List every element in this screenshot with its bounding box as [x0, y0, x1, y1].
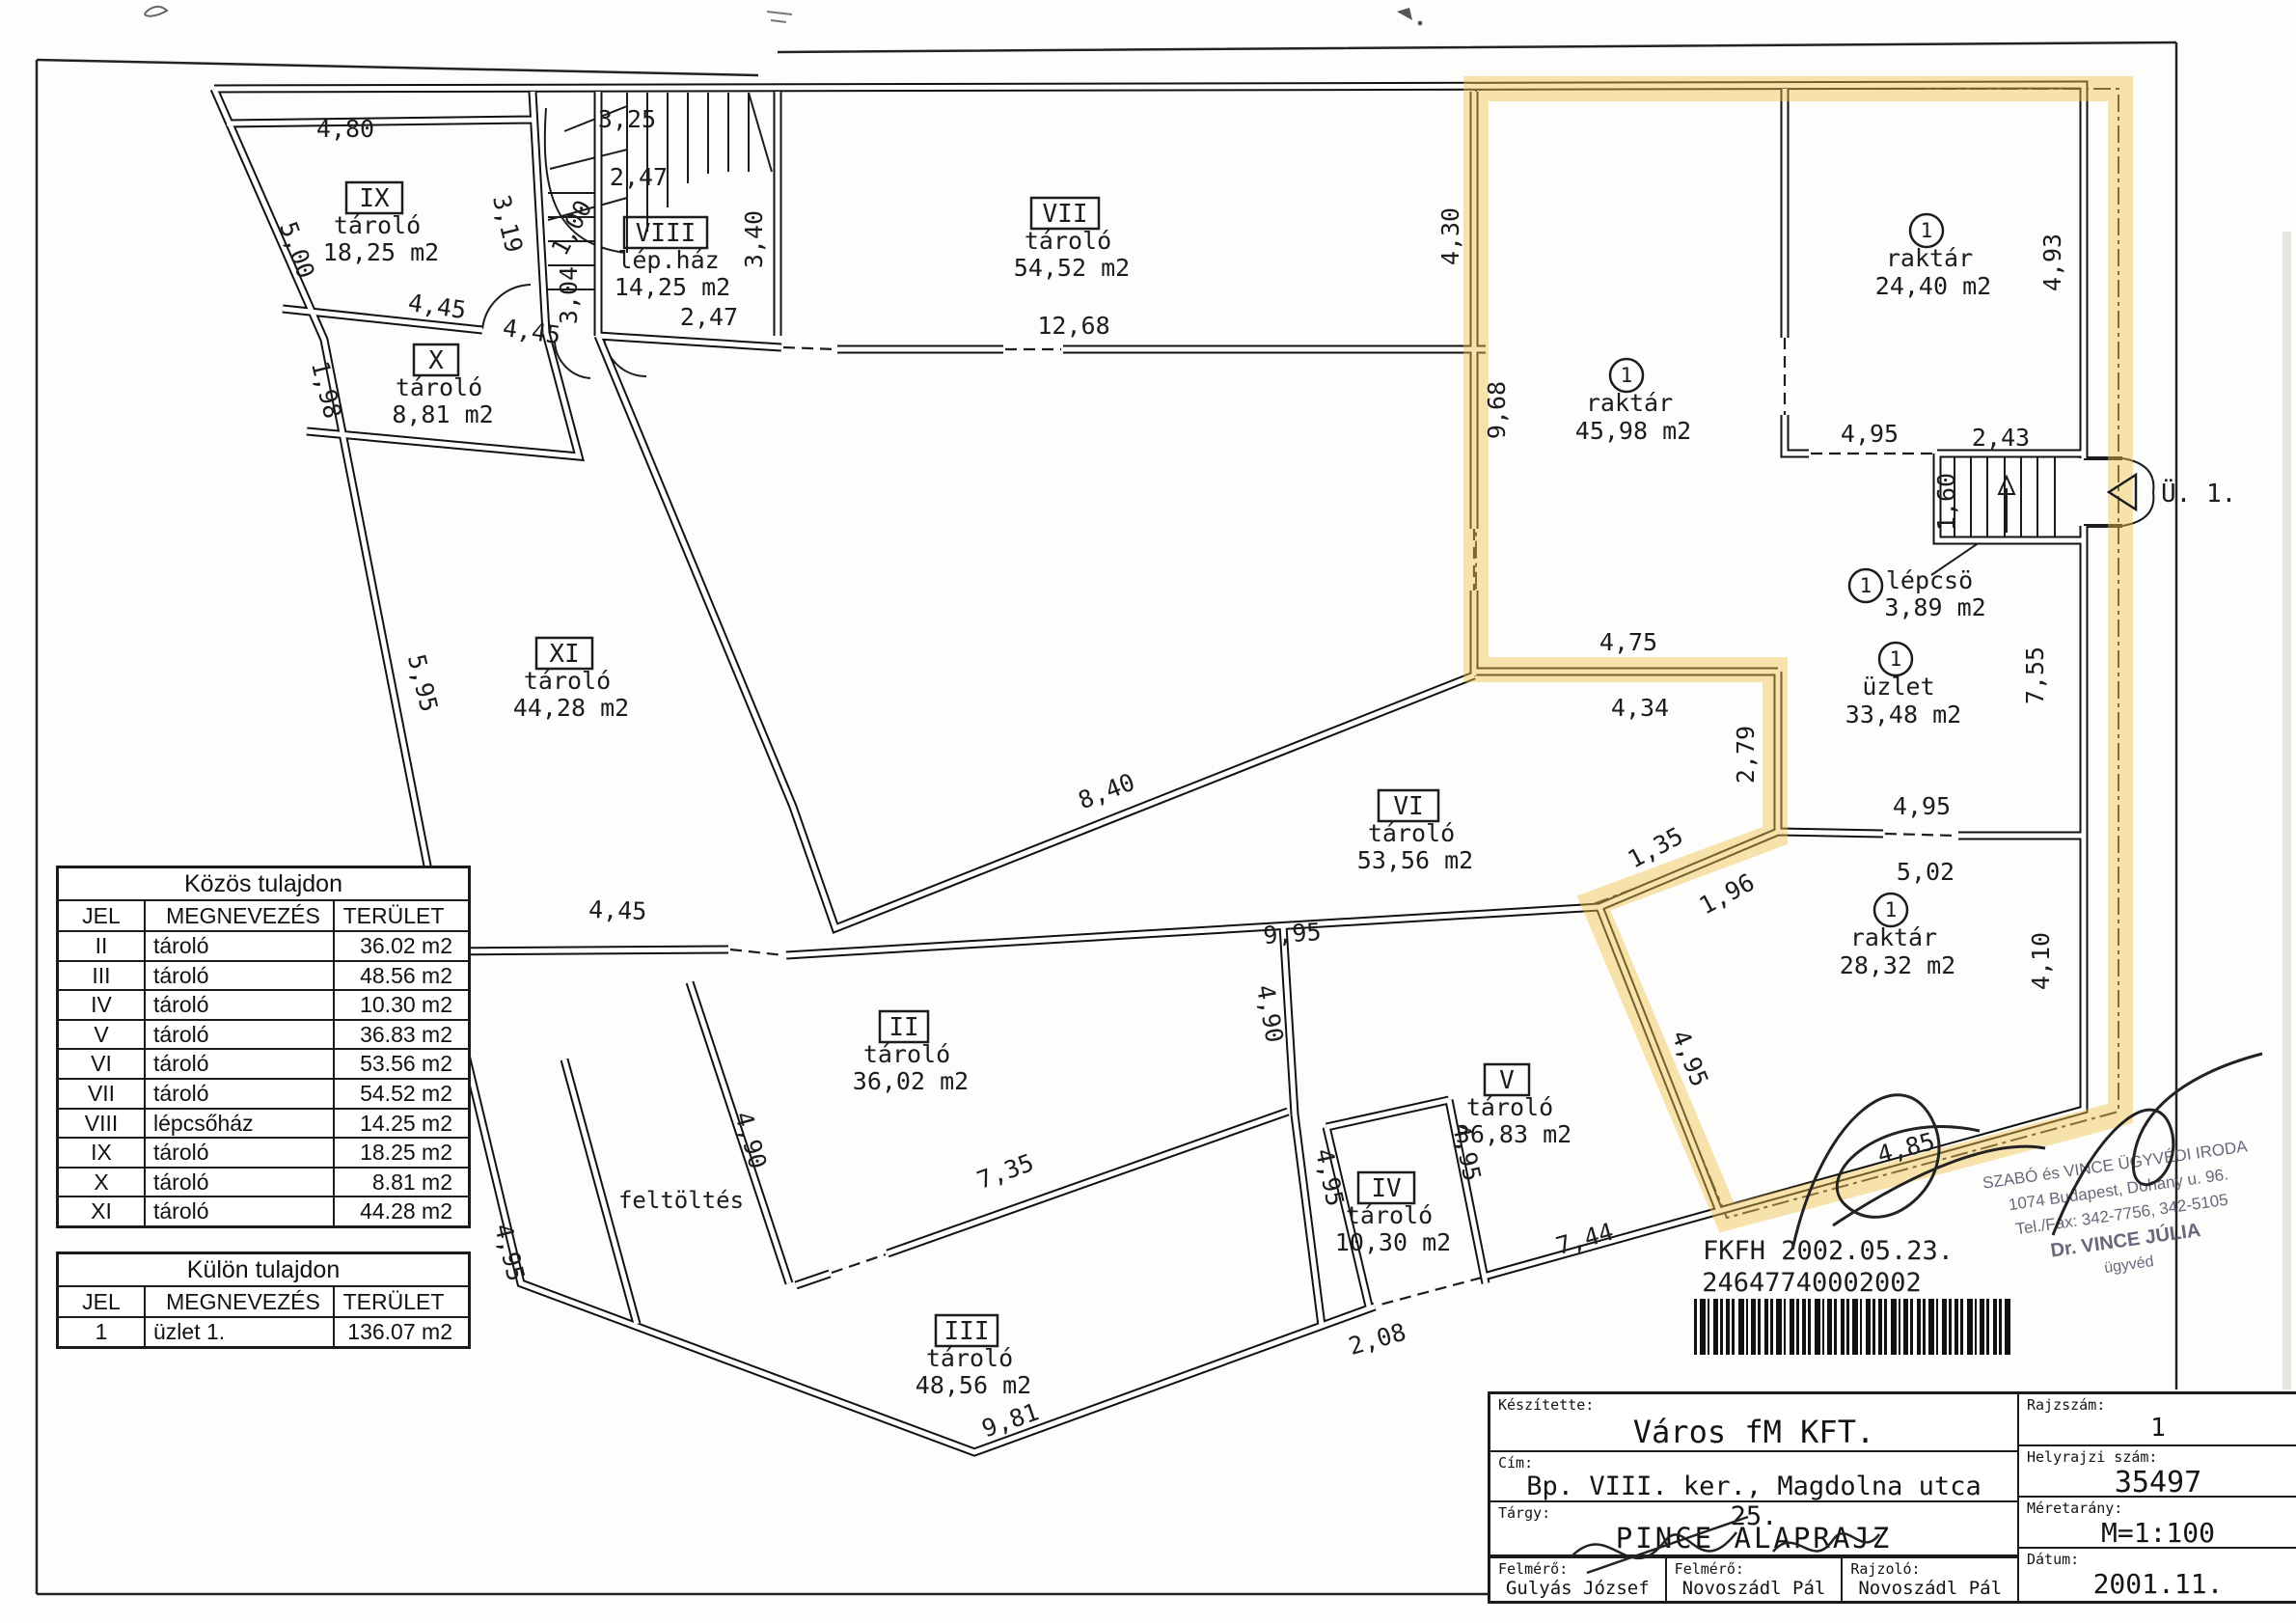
- room-label-IX: IXtároló18,25 m2: [323, 182, 439, 266]
- barcode-bar: [1846, 1299, 1849, 1355]
- dimension-label: 5,95: [402, 651, 444, 714]
- unit-number: 1: [1921, 219, 1933, 242]
- dimension-label: 9,68: [1483, 381, 1511, 439]
- barcode-bar: [1884, 1299, 1887, 1355]
- room-label-VIII: VIIIlép.ház14,25 m2: [615, 217, 730, 301]
- people-row: Felmérő: Gulyás József Felmérő: Novoszád…: [1490, 1556, 2017, 1601]
- drafter-cell: Rajzoló: Novoszádl Pál: [1843, 1558, 2017, 1601]
- surveyor1-label: Felmérő:: [1498, 1560, 1657, 1578]
- drawing-no-label: Rajzszám:: [2027, 1396, 2289, 1414]
- cell-terulet: 10.30 m2: [335, 991, 468, 1019]
- unit-number: 1: [1885, 898, 1898, 922]
- dimension-label: 7,35: [973, 1148, 1038, 1195]
- dimension-label: 4,95: [1893, 792, 1951, 820]
- dimension-label: 3,04: [555, 266, 583, 324]
- barcode-bar: [1720, 1299, 1723, 1355]
- barcode-bar: [1903, 1299, 1908, 1355]
- stamp-title: ügyvéd: [2103, 1253, 2154, 1277]
- unit-room-area: 28,32 m2: [1840, 951, 1955, 979]
- parcel-cell: Helyrajzi szám: 35497: [2019, 1446, 2296, 1498]
- room-name: tároló: [863, 1040, 950, 1068]
- cell-jel: IV: [59, 991, 146, 1019]
- barcode-bar: [1827, 1299, 1832, 1355]
- barcode-bar: [1928, 1299, 1934, 1355]
- barcode-bar: [1796, 1299, 1799, 1355]
- table-row: IVtároló10.30 m2: [59, 991, 468, 1021]
- cell-megnevezes: tároló: [146, 1021, 335, 1049]
- title-block: Készítette: Város fM KFT. Cím: Bp. VIII.…: [1488, 1391, 2296, 1604]
- scan-shadow: [2282, 232, 2291, 1389]
- barcode-bar: [1899, 1299, 1900, 1355]
- surveyor2-cell: Felmérő: Novoszádl Pál: [1667, 1558, 1844, 1601]
- room-id: XI: [549, 640, 579, 669]
- barcode-bar: [1802, 1299, 1806, 1355]
- surveyor1-value: Gulyás József: [1498, 1578, 1657, 1599]
- table-row: IIItároló48.56 m2: [59, 962, 468, 992]
- cell-jel: III: [59, 962, 146, 990]
- unit-room-name: raktár: [1886, 244, 1973, 272]
- room-area: 48,56 m2: [916, 1371, 1031, 1399]
- barcode-bar: [1790, 1299, 1794, 1355]
- barcode-stamp: FKFH 2002.05.23. 24647740002002: [1694, 1236, 2010, 1355]
- table-row: IXtároló18.25 m2: [59, 1139, 468, 1169]
- column-header: TERÜLET: [335, 901, 468, 930]
- room-area: 36,02 m2: [853, 1067, 969, 1095]
- subject-cell: Tárgy: PINCE ALAPRAJZ: [1490, 1502, 2017, 1556]
- barcode-bar: [2005, 1299, 2010, 1355]
- cell-megnevezes: tároló: [146, 991, 335, 1019]
- made-by-value: Város fM KFT.: [1498, 1414, 2009, 1450]
- barcode-bar: [1808, 1299, 1811, 1355]
- room-area: 54,52 m2: [1014, 254, 1130, 282]
- barcode-agency-date: FKFH 2002.05.23.: [1703, 1236, 1954, 1266]
- lawyer-stamp: SZABÓ és VINCE ÜGYVÉDI IRODA 1074 Budape…: [1982, 1137, 2263, 1291]
- unit-room-label-raktár: 1raktár24,40 m2: [1875, 214, 1991, 300]
- title-block-left: Készítette: Város fM KFT. Cím: Bp. VIII.…: [1490, 1394, 2019, 1601]
- common-property-table: Közös tulajdonJELMEGNEVEZÉSTERÜLETIItáro…: [56, 866, 471, 1228]
- barcode-bar: [1860, 1299, 1862, 1355]
- unit-room-name: raktár: [1586, 389, 1673, 417]
- barcode-bar: [1980, 1299, 1984, 1355]
- dimension-label: 2,43: [1972, 424, 2030, 452]
- room-name: lép.ház: [617, 246, 719, 274]
- room-label-XI: XItároló44,28 m2: [513, 638, 629, 722]
- dimension-label: 4,30: [1436, 207, 1464, 265]
- unit-room-label-üzlet: 1üzlet33,48 m2: [1845, 643, 1961, 729]
- dimension-label: 4,34: [1611, 694, 1669, 722]
- dimension-label: 12,68: [1037, 312, 1109, 340]
- table-row: VIIIlépcsőház14.25 m2: [59, 1110, 468, 1140]
- barcode-bar: [1713, 1299, 1718, 1355]
- dimension-label: 4,95: [1310, 1146, 1350, 1209]
- scan-mark-topleft: [145, 7, 167, 16]
- unit-room-area: 3,89 m2: [1884, 593, 1985, 621]
- barcode-bar: [1770, 1299, 1773, 1355]
- cell-megnevezes: tároló: [146, 1050, 335, 1078]
- room-area: 18,25 m2: [323, 238, 439, 266]
- cell-megnevezes: tároló: [146, 1139, 335, 1167]
- dimension-label: 4,95: [1841, 420, 1899, 448]
- title-block-right: Rajzszám: 1 Helyrajzi szám: 35497 Méreta…: [2019, 1394, 2296, 1601]
- unit-number: 1: [1621, 364, 1633, 387]
- room-name: tároló: [1466, 1093, 1553, 1121]
- dimension-label: 1,98: [306, 358, 347, 421]
- table-row: VItároló53.56 m2: [59, 1050, 468, 1080]
- cell-megnevezes: tároló: [146, 1197, 335, 1225]
- barcode-bar: [1872, 1299, 1875, 1355]
- room-label-VI: VItároló53,56 m2: [1357, 790, 1473, 874]
- room-id: VII: [1043, 200, 1088, 229]
- dimension-label: 4,45: [588, 895, 647, 925]
- cell-jel: V: [59, 1021, 146, 1049]
- room-label-VII: VIItároló54,52 m2: [1014, 198, 1130, 282]
- barcode-bar: [1738, 1299, 1744, 1355]
- table-row: XItároló44.28 m2: [59, 1197, 468, 1225]
- unit-room-area: 45,98 m2: [1575, 417, 1691, 445]
- cell-terulet: 18.25 m2: [335, 1139, 468, 1167]
- date-label: Dátum:: [2027, 1551, 2289, 1568]
- room-area: 14,25 m2: [615, 273, 730, 301]
- cell-megnevezes: üzlet 1.: [146, 1318, 335, 1346]
- table-row: IItároló36.02 m2: [59, 932, 468, 962]
- cell-terulet: 54.52 m2: [335, 1080, 468, 1108]
- barcode-bar: [1726, 1299, 1730, 1355]
- cell-terulet: 48.56 m2: [335, 962, 468, 990]
- scan-mark-topmid: [767, 12, 792, 22]
- scan-mark-arrow: [1397, 8, 1412, 20]
- room-name: tároló: [524, 667, 611, 695]
- dimension-label: 3,40: [740, 210, 768, 268]
- dimension-label: 2,47: [610, 163, 668, 191]
- table-row: Xtároló8.81 m2: [59, 1169, 468, 1198]
- barcode-bar: [1694, 1299, 1697, 1355]
- dimension-label: 1,96: [1695, 868, 1760, 921]
- barcode-bar: [1852, 1299, 1858, 1355]
- cell-terulet: 44.28 m2: [335, 1197, 468, 1225]
- dimension-label: 4,95: [489, 1221, 531, 1283]
- date-cell: Dátum: 2001.11.: [2019, 1549, 2296, 1602]
- room-label-X: Xtároló8,81 m2: [392, 344, 493, 428]
- dimension-label: 3,19: [487, 192, 529, 255]
- room-name: tároló: [1346, 1201, 1433, 1229]
- barcode-bar: [1764, 1299, 1768, 1355]
- dimension-label: 2,79: [1732, 726, 1760, 784]
- drawing-no-cell: Rajzszám: 1: [2019, 1394, 2296, 1446]
- unit-room-name: raktár: [1850, 923, 1937, 951]
- scan-mark-dot: [1418, 21, 1423, 26]
- drafter-label: Rajzoló:: [1850, 1560, 2009, 1578]
- room-labels: IXtároló18,25 m2Xtároló8,81 m2VIIIlép.há…: [323, 182, 1572, 1399]
- barcode-bar: [1967, 1299, 1973, 1355]
- made-by-label: Készítette:: [1498, 1396, 2009, 1414]
- room-name: tároló: [926, 1344, 1013, 1372]
- dimension-label: 7,55: [2021, 646, 2049, 704]
- fill-area-label: feltöltés: [618, 1187, 744, 1214]
- room-id: IV: [1371, 1174, 1401, 1203]
- cell-jel: IX: [59, 1139, 146, 1167]
- room-id: VIII: [636, 219, 697, 248]
- barcode-bar: [1999, 1299, 2002, 1355]
- room-name: tároló: [334, 211, 421, 239]
- unit-room-label-lépcsö: 1lépcsö3,89 m2: [1849, 566, 1986, 621]
- unit-room-label-raktár: 1raktár28,32 m2: [1840, 894, 1955, 979]
- unit-number: 1: [1860, 574, 1872, 597]
- barcode-bar: [1700, 1299, 1706, 1355]
- barcode-number: 24647740002002: [1702, 1268, 1922, 1298]
- room-name: tároló: [396, 373, 482, 401]
- barcode-bar: [1891, 1299, 1897, 1355]
- entrance-label: Ü. 1.: [2161, 478, 2236, 509]
- room-id: III: [944, 1317, 990, 1346]
- room-id: X: [428, 346, 444, 375]
- room-label-III: IIItároló48,56 m2: [916, 1315, 1031, 1399]
- barcode-bars: [1694, 1299, 2010, 1355]
- scale-label: Méretarány:: [2027, 1499, 2289, 1517]
- unit-number: 1: [1890, 647, 1902, 671]
- subject-value: PINCE ALAPRAJZ: [1498, 1522, 2009, 1554]
- barcode-bar: [1949, 1299, 1952, 1355]
- room-id: VI: [1393, 792, 1423, 821]
- dimension-label: 2,08: [1346, 1318, 1409, 1361]
- barcode-bar: [1910, 1299, 1913, 1355]
- dimension-label: 4,80: [316, 115, 374, 143]
- barcode-bar: [1746, 1299, 1748, 1355]
- cell-megnevezes: tároló: [146, 932, 335, 960]
- cell-jel: XI: [59, 1197, 146, 1225]
- subject-label: Tárgy:: [1498, 1504, 2009, 1522]
- barcode-bar: [1776, 1299, 1782, 1355]
- room-area: 53,56 m2: [1357, 846, 1473, 874]
- dimension-label: 3,25: [598, 105, 656, 133]
- cell-megnevezes: lépcsőház: [146, 1110, 335, 1138]
- dimension-label: 7,44: [1553, 1218, 1617, 1260]
- barcode-bar: [1834, 1299, 1837, 1355]
- room-label-II: IItároló36,02 m2: [853, 1011, 969, 1095]
- column-header: JEL: [59, 1287, 146, 1316]
- barcode-bar: [1923, 1299, 1926, 1355]
- cell-jel: II: [59, 932, 146, 960]
- scale-value: M=1:100: [2027, 1517, 2289, 1549]
- separate-table-title: Külön tulajdon: [59, 1254, 468, 1287]
- table-row: 1üzlet 1.136.07 m2: [59, 1318, 468, 1346]
- surveyor1-cell: Felmérő: Gulyás József: [1490, 1558, 1667, 1601]
- barcode-bar: [1751, 1299, 1756, 1355]
- barcode-bar: [1878, 1299, 1882, 1355]
- barcode-bar: [1942, 1299, 1947, 1355]
- column-header: TERÜLET: [335, 1287, 468, 1316]
- room-area: 10,30 m2: [1335, 1228, 1451, 1256]
- parcel-value: 35497: [2027, 1466, 2289, 1499]
- column-header: MEGNEVEZÉS: [146, 901, 335, 930]
- common-table-title: Közös tulajdon: [59, 868, 468, 901]
- date-value: 2001.11.: [2027, 1568, 2289, 1600]
- barcode-bar: [1975, 1299, 1977, 1355]
- cell-terulet: 53.56 m2: [335, 1050, 468, 1078]
- unit-room-name: lépcsö: [1886, 566, 1973, 594]
- dimension-label: 9,95: [1262, 918, 1322, 949]
- barcode-bar: [1954, 1299, 1958, 1355]
- barcode-bar: [1822, 1299, 1824, 1355]
- surveyor2-label: Felmérő:: [1675, 1560, 1834, 1578]
- separate-table-header-row: JELMEGNEVEZÉSTERÜLET: [59, 1287, 468, 1318]
- room-name: tároló: [1368, 819, 1455, 847]
- barcode-bar: [1936, 1299, 1938, 1355]
- cell-jel: X: [59, 1169, 146, 1197]
- scale-cell: Méretarány: M=1:100: [2019, 1498, 2296, 1549]
- barcode-bar: [1815, 1299, 1820, 1355]
- dimension-label: 1,60: [1932, 473, 1960, 531]
- table-row: VIItároló54.52 m2: [59, 1080, 468, 1110]
- dimension-label: 4,93: [2038, 234, 2066, 291]
- column-header: JEL: [59, 901, 146, 930]
- barcode-bar: [1960, 1299, 1963, 1355]
- cell-terulet: 36.83 m2: [335, 1021, 468, 1049]
- dimension-label: 4,75: [1599, 628, 1657, 656]
- cell-jel: VII: [59, 1080, 146, 1108]
- dimension-label: 5,02: [1897, 858, 1954, 886]
- dimension-label: 4,90: [729, 1109, 772, 1172]
- table-row: Vtároló36.83 m2: [59, 1021, 468, 1051]
- unit-room-area: 24,40 m2: [1875, 272, 1991, 300]
- separate-property-table: Külön tulajdonJELMEGNEVEZÉSTERÜLET1üzlet…: [56, 1252, 471, 1349]
- barcode-bar: [1784, 1299, 1786, 1355]
- room-area: 44,28 m2: [513, 694, 629, 722]
- column-header: MEGNEVEZÉS: [146, 1287, 335, 1316]
- barcode-bar: [1732, 1299, 1735, 1355]
- dimension-label: 4,10: [2027, 932, 2055, 990]
- dimension-label: 4,45: [501, 314, 562, 349]
- cell-jel: VIII: [59, 1110, 146, 1138]
- made-by-cell: Készítette: Város fM KFT.: [1490, 1394, 2017, 1452]
- unit-room-name: üzlet: [1862, 673, 1934, 701]
- barcode-bar: [1708, 1299, 1709, 1355]
- drawing-no-value: 1: [2027, 1414, 2289, 1443]
- parcel-label: Helyrajzi szám:: [2027, 1448, 2289, 1466]
- cell-megnevezes: tároló: [146, 1169, 335, 1197]
- scanned-floorplan-page: Ü. 1. feltöltés IXtároló18,25 m2Xtároló8…: [0, 0, 2296, 1623]
- unit-room-area: 33,48 m2: [1845, 701, 1961, 729]
- cell-terulet: 136.07 m2: [335, 1318, 468, 1346]
- cell-jel: 1: [59, 1318, 146, 1346]
- dimension-label: 1,00: [546, 196, 598, 261]
- dimension-label: 2,47: [680, 303, 738, 331]
- room-name: tároló: [1025, 227, 1111, 255]
- cell-terulet: 36.02 m2: [335, 932, 468, 960]
- cell-jel: VI: [59, 1050, 146, 1078]
- barcode-bar: [1993, 1299, 1997, 1355]
- room-id: IX: [359, 184, 390, 213]
- barcode-bar: [1866, 1299, 1871, 1355]
- cell-megnevezes: tároló: [146, 1080, 335, 1108]
- barcode-bar: [1841, 1299, 1845, 1355]
- room-id: II: [888, 1013, 918, 1042]
- address-cell: Cím: Bp. VIII. ker., Magdolna utca 25.: [1490, 1452, 2017, 1502]
- floorplan-drawing: Ü. 1. feltöltés IXtároló18,25 m2Xtároló8…: [0, 0, 2296, 1623]
- drafter-value: Novoszádl Pál: [1850, 1578, 2009, 1599]
- common-table-header-row: JELMEGNEVEZÉSTERÜLET: [59, 901, 468, 932]
- unit-room-label-raktár: 1raktár45,98 m2: [1575, 359, 1691, 445]
- room-id: V: [1499, 1066, 1515, 1095]
- room-area: 8,81 m2: [392, 400, 493, 428]
- barcode-bar: [1986, 1299, 1989, 1355]
- cell-terulet: 14.25 m2: [335, 1110, 468, 1138]
- cell-megnevezes: tároló: [146, 962, 335, 990]
- surveyor2-value: Novoszádl Pál: [1675, 1578, 1834, 1599]
- cell-terulet: 8.81 m2: [335, 1169, 468, 1197]
- address-label: Cím:: [1498, 1454, 2009, 1472]
- barcode-bar: [1917, 1299, 1921, 1355]
- room-label-IV: IVtároló10,30 m2: [1335, 1172, 1451, 1256]
- barcode-bar: [1758, 1299, 1761, 1355]
